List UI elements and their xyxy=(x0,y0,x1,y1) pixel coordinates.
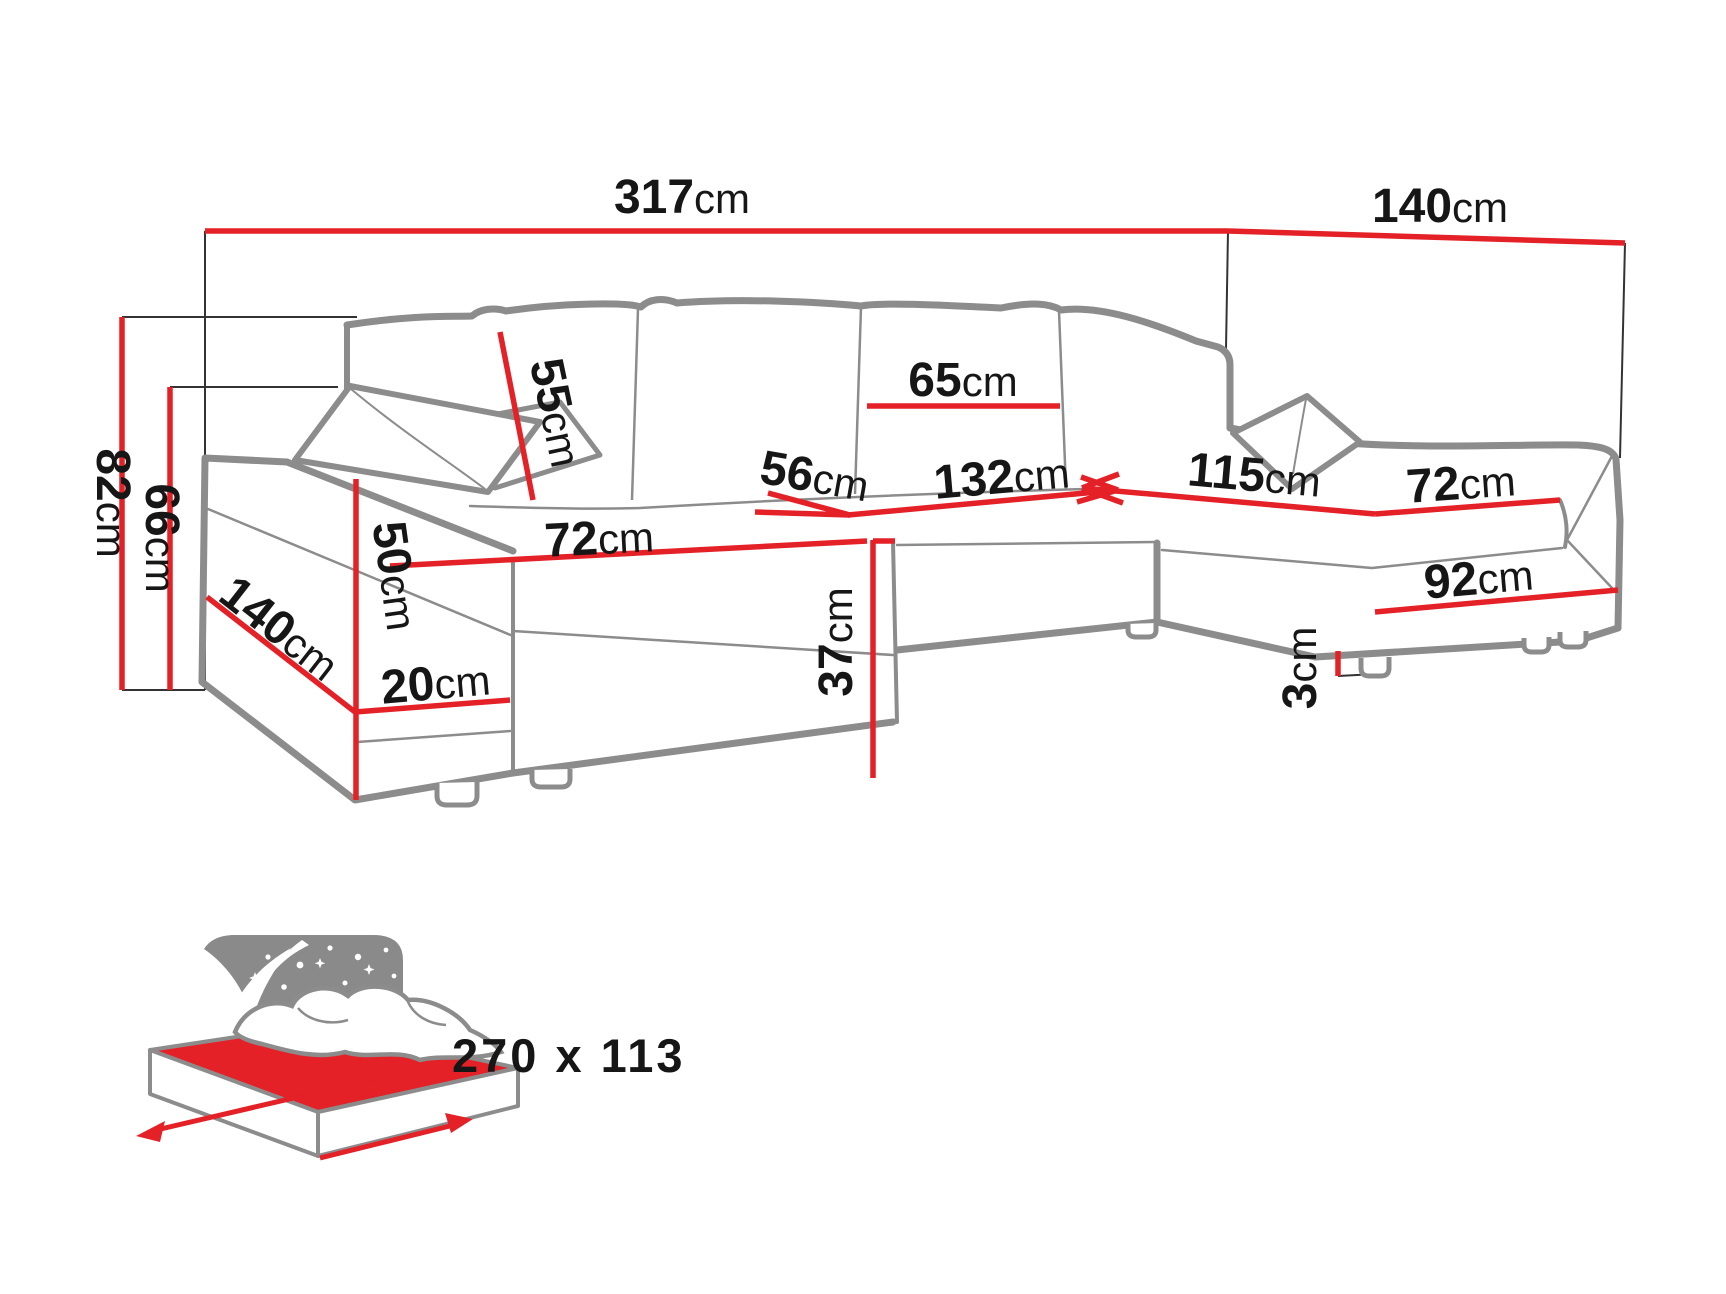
sleeping-function-icon: 270 x 113 xyxy=(136,935,686,1158)
dim-leg-height: 3cm xyxy=(1274,627,1327,710)
dim-line-seat-height xyxy=(873,540,895,778)
dim-left-chaise-depth: 140cm xyxy=(210,566,350,692)
dim-center-seat-width: 132cm xyxy=(932,445,1072,510)
bed-size-label: 270 x 113 xyxy=(452,1029,686,1082)
dim-total-depth-right: 140cm xyxy=(1372,180,1508,233)
dim-seat-height: 37cm xyxy=(810,587,863,696)
dim-total-width: 317cm xyxy=(614,171,750,224)
dim-height-total: 82cm xyxy=(86,448,139,557)
diagram-svg: 317cm 140cm 82cm 66cm 55cm 65cm 56cm 132… xyxy=(0,0,1726,1294)
dim-right-seat-width: 72cm xyxy=(1405,453,1518,514)
dim-left-seat-width: 72cm xyxy=(543,509,655,568)
sofa-dimension-diagram: 317cm 140cm 82cm 66cm 55cm 65cm 56cm 132… xyxy=(0,0,1726,1294)
dim-armrest-height: 50cm xyxy=(361,518,429,634)
dim-center-cushion: 65cm xyxy=(908,354,1017,407)
dim-height-back: 66cm xyxy=(135,483,188,592)
